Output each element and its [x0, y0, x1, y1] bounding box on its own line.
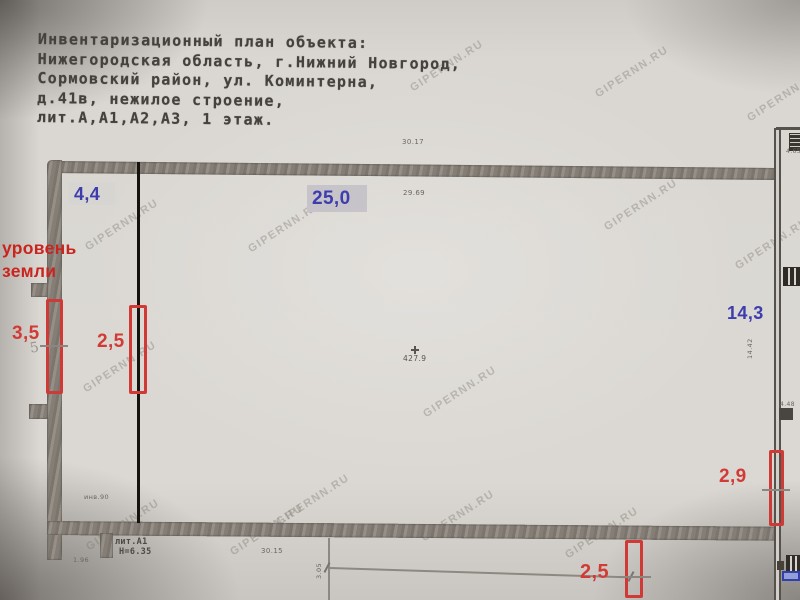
bottom-wall-stub — [100, 533, 113, 558]
room-area-label: 427.9 — [403, 354, 426, 363]
red-marker-bottom — [625, 540, 643, 598]
left-wall-stub-upper — [31, 283, 48, 297]
measurement-blue-top-left: 4,4 — [74, 184, 100, 205]
marker-tick-right — [762, 489, 790, 491]
marker-tick-bottom — [617, 576, 651, 578]
measurement-blue-right-height: 14,3 — [727, 303, 764, 324]
measurement-red-right-lower: 2,9 — [719, 466, 747, 488]
building-height-label: Н=6.35 — [119, 547, 152, 557]
watermark: GIPERNN.RU — [602, 177, 680, 233]
left-wall-stub-lower — [29, 404, 48, 419]
right-wall-window-symbol — [783, 267, 800, 286]
inv-mark-label: инв.90 — [84, 493, 109, 501]
dim-label-left-small: 1.96 — [73, 556, 89, 564]
dim-label-right-mid-tiny: 4.48 — [780, 401, 795, 408]
dim-label-bottom-small: 3.05 — [315, 563, 323, 579]
watermark: GIPERNN.RU — [421, 364, 499, 420]
header-line-5: лит.А,А1,А2,А3, 1 этаж. — [37, 108, 461, 133]
building-lit-label: лит.А1 — [115, 537, 148, 547]
dim-label-right-top-tiny: 4.65 — [786, 148, 800, 155]
dim-label-top-outer: 30.17 — [402, 138, 424, 146]
watermark: GIPERNN.RU — [83, 197, 161, 253]
plan-header: Инвентаризационный план объекта: Нижегор… — [37, 30, 462, 133]
bottom-right-blue-bar — [782, 571, 800, 581]
measurement-red-bottom: 2,5 — [580, 561, 609, 584]
bottom-right-small-block — [777, 561, 784, 570]
dim-label-right-vertical: 14.42 — [746, 338, 754, 359]
ground-level-label-line2: земли — [2, 261, 56, 282]
scanned-floor-plan-page: GIPERNN.RU GIPERNN.RU GIPERNN.RU GIPERNN… — [0, 0, 800, 600]
bottom-wall — [47, 521, 776, 541]
right-wall — [774, 128, 781, 600]
measurement-red-left-inner: 2,5 — [97, 331, 125, 353]
right-wall-small-block — [779, 408, 793, 420]
dim-label-top-inner: 29.69 — [403, 189, 425, 197]
marker-tick-left — [40, 345, 68, 347]
red-marker-divider-line — [129, 305, 147, 394]
ground-level-label-line1: уровень — [2, 238, 77, 259]
watermark: GIPERNN.RU — [745, 68, 800, 124]
measurement-red-left-outer: 3,5 — [12, 323, 40, 345]
right-wall-top-cap — [776, 127, 800, 130]
top-wall — [52, 161, 776, 180]
red-marker-right-wall — [769, 450, 784, 526]
watermark: GIPERNN.RU — [733, 216, 800, 272]
watermark: GIPERNN.RU — [593, 44, 671, 100]
area-marker-cross — [411, 349, 419, 351]
measurement-blue-top-length: 25,0 — [312, 188, 351, 210]
dim-label-bottom-inner: 30.15 — [261, 547, 283, 555]
